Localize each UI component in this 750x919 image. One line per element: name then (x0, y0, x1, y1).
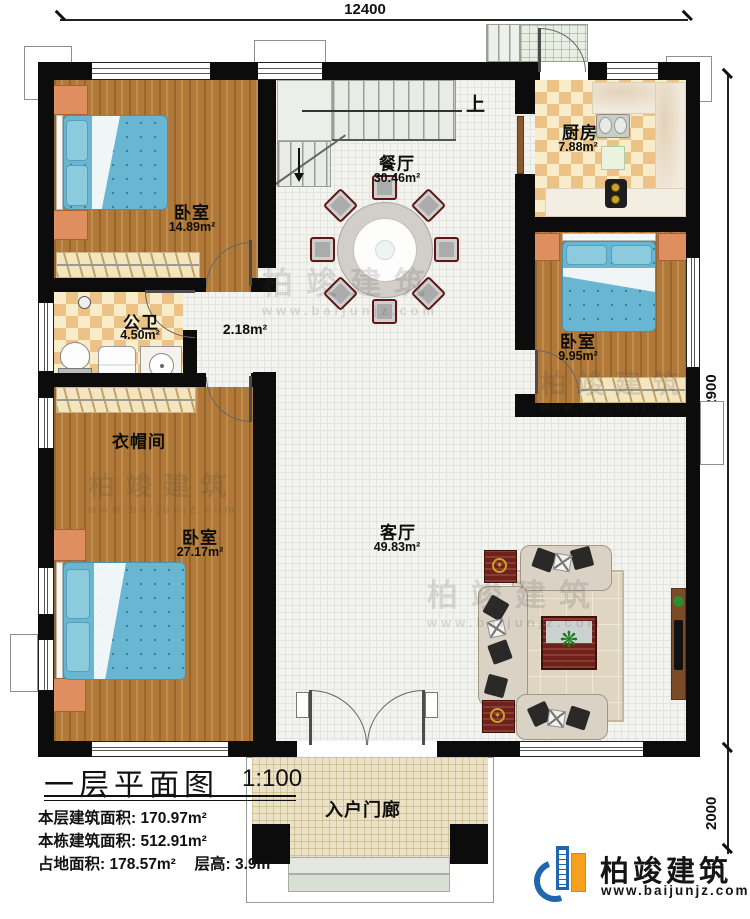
porch-column (450, 824, 488, 864)
bed-pillow (66, 165, 88, 206)
dining-chair (434, 237, 459, 262)
sofa-cushion (486, 618, 506, 638)
porch-step (288, 874, 450, 892)
stair-up-label: 上 (466, 90, 486, 117)
wall (54, 373, 183, 387)
nightstand (52, 678, 86, 712)
wall (686, 367, 700, 757)
window (38, 303, 54, 371)
door-leaf (145, 290, 195, 293)
stair-up-line (302, 110, 462, 112)
bed-headboard (562, 233, 656, 241)
wall (228, 741, 297, 757)
porch-step (288, 857, 450, 874)
room-area: 14.89m² (169, 220, 216, 234)
nightstand (52, 210, 88, 240)
logo-building-icon (556, 846, 569, 890)
door-leaf (249, 240, 252, 286)
sofa-cushion (547, 709, 566, 728)
basin-drain (160, 364, 164, 368)
bed-pillow (66, 622, 90, 672)
nightstand (52, 529, 86, 561)
window (38, 640, 54, 690)
stair-railing (332, 139, 456, 141)
stat-value: 170.97m² (140, 810, 206, 827)
wall (258, 80, 276, 268)
window (686, 258, 700, 367)
wall (183, 373, 206, 387)
stat-label: 占地面积: (38, 856, 105, 873)
window (607, 62, 658, 80)
bed-pillow (66, 120, 88, 161)
logo-building-orange-icon (571, 853, 586, 892)
dimension-line-top (60, 19, 688, 21)
entry-door-leaf (422, 690, 425, 745)
door-leaf (538, 28, 541, 72)
door-post (296, 692, 309, 718)
room-area: 27.17m² (177, 545, 224, 559)
stat-label: 本栋建筑面积: (38, 833, 136, 850)
stair-direction-arrow (298, 148, 300, 174)
wardrobe (56, 387, 196, 413)
stove-burner (611, 183, 620, 192)
stat-label: 本层建筑面积: (38, 810, 136, 827)
stat-value: 512.91m² (140, 833, 206, 850)
hall-area: 2.18m² (223, 321, 267, 337)
wall (38, 448, 54, 568)
bed-headboard (56, 115, 63, 210)
room-area: 4.50m² (120, 328, 160, 342)
dining-chair (372, 299, 397, 324)
window (38, 568, 54, 614)
floor-plan-canvas: 12400 12900 2000 上 (0, 0, 750, 919)
wall (253, 372, 276, 741)
lazy-susan (375, 240, 395, 260)
wardrobe (56, 252, 200, 278)
bay-window-left (10, 634, 38, 692)
wall (38, 62, 54, 303)
back-steps (486, 24, 520, 62)
porch-label: 入户门廊 (325, 796, 401, 822)
window (38, 398, 54, 448)
stat-footprint-height: 占地面积: 178.57m² 层高: 3.9m (38, 852, 270, 874)
dimension-line-right-main (727, 75, 729, 752)
wall (38, 371, 54, 398)
rosette-icon: ✦ (492, 558, 507, 573)
tv-icon (674, 620, 683, 670)
dining-chair (310, 237, 335, 262)
wall (38, 614, 54, 640)
ceiling-lamp-icon (78, 296, 91, 309)
wall (251, 278, 276, 292)
stat-floor-area: 本层建筑面积: 170.97m² (38, 806, 207, 828)
brand-url: www.baijunjz.com (601, 883, 750, 898)
kitchen-sliding-door (517, 116, 524, 174)
rosette-icon: ✦ (490, 708, 505, 723)
bay-window-right (700, 401, 724, 465)
door-leaf (535, 350, 538, 394)
room-name: 衣帽间 (112, 428, 166, 453)
stat-building-area: 本栋建筑面积: 512.91m² (38, 829, 207, 851)
nightstand (52, 85, 88, 115)
door-leaf (249, 376, 252, 422)
wall (515, 80, 535, 114)
bed-pillow (66, 569, 90, 619)
stat-value: 178.57m² (109, 856, 175, 873)
bed-headboard (56, 562, 63, 680)
wall (210, 62, 258, 80)
wardrobe (580, 377, 686, 403)
room-area: 7.88m² (558, 140, 598, 154)
stat-label: 层高: (194, 856, 230, 873)
dimension-right-porch-label: 2000 (703, 778, 720, 848)
wall (515, 232, 535, 350)
plan-scale: 1:100 (242, 765, 302, 793)
dimension-line-right-porch (727, 752, 729, 854)
title-underline (44, 795, 296, 801)
wall (515, 403, 700, 417)
kitchen-table (601, 146, 625, 170)
room-area: 30.46m² (374, 171, 421, 185)
room-area: 9.95m² (558, 349, 598, 363)
window (258, 62, 322, 80)
wall (515, 217, 700, 232)
plant-icon: ❋ (557, 628, 581, 652)
entry-door-leaf (309, 690, 312, 745)
stair-arrowhead-icon (294, 173, 304, 182)
wall (38, 690, 54, 757)
stat-value: 3.9m (235, 856, 270, 873)
sink-basin (614, 117, 627, 134)
toilet-icon (60, 342, 90, 370)
plant-icon (673, 596, 684, 607)
bed-pillow (566, 245, 607, 265)
room-area: 49.83m² (374, 540, 421, 554)
nightstand (658, 233, 688, 261)
window (92, 62, 210, 80)
door-post (425, 692, 438, 718)
wall (588, 62, 607, 80)
stove-burner (611, 195, 620, 204)
wall (322, 62, 540, 80)
bed-pillow (611, 245, 652, 265)
sink-basin (599, 117, 612, 134)
sofa-cushion (553, 553, 573, 573)
wall (437, 741, 520, 757)
window (92, 741, 228, 757)
window (520, 741, 643, 757)
dimension-top-label: 12400 (320, 1, 410, 18)
